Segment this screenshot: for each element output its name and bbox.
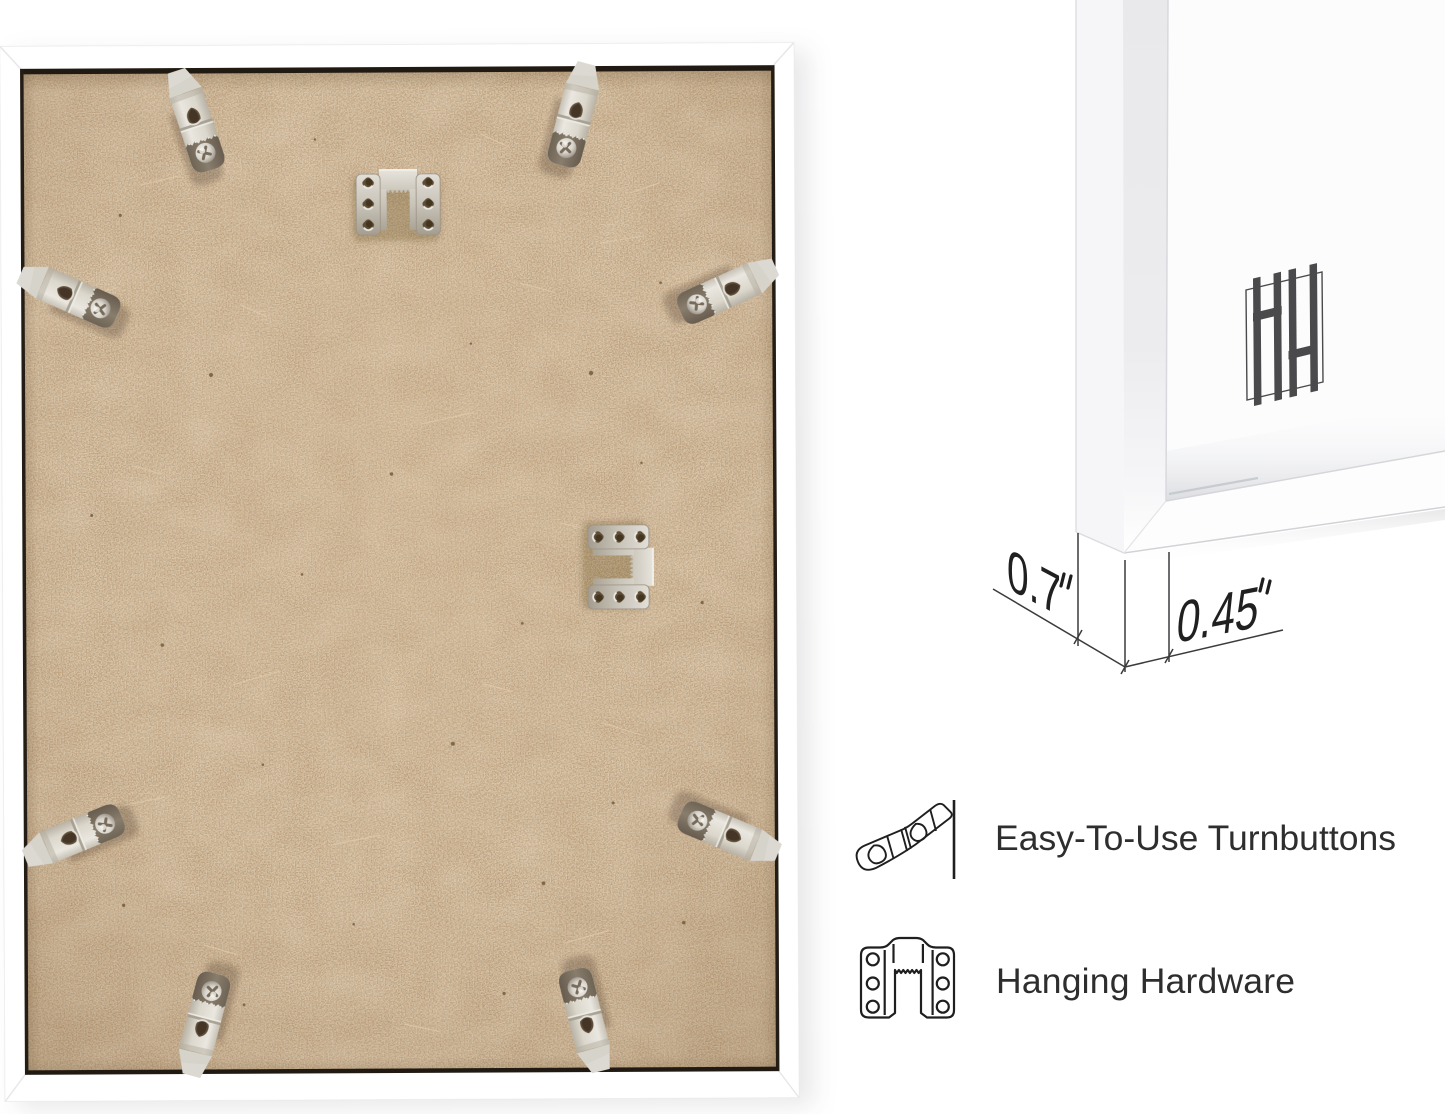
svg-text:Hanging Hardware: Hanging Hardware: [996, 961, 1295, 1001]
svg-text:0.45: 0.45: [1174, 573, 1263, 656]
svg-text:Easy-To-Use Turnbuttons: Easy-To-Use Turnbuttons: [995, 818, 1396, 858]
svg-text:0.7: 0.7: [1007, 537, 1061, 630]
